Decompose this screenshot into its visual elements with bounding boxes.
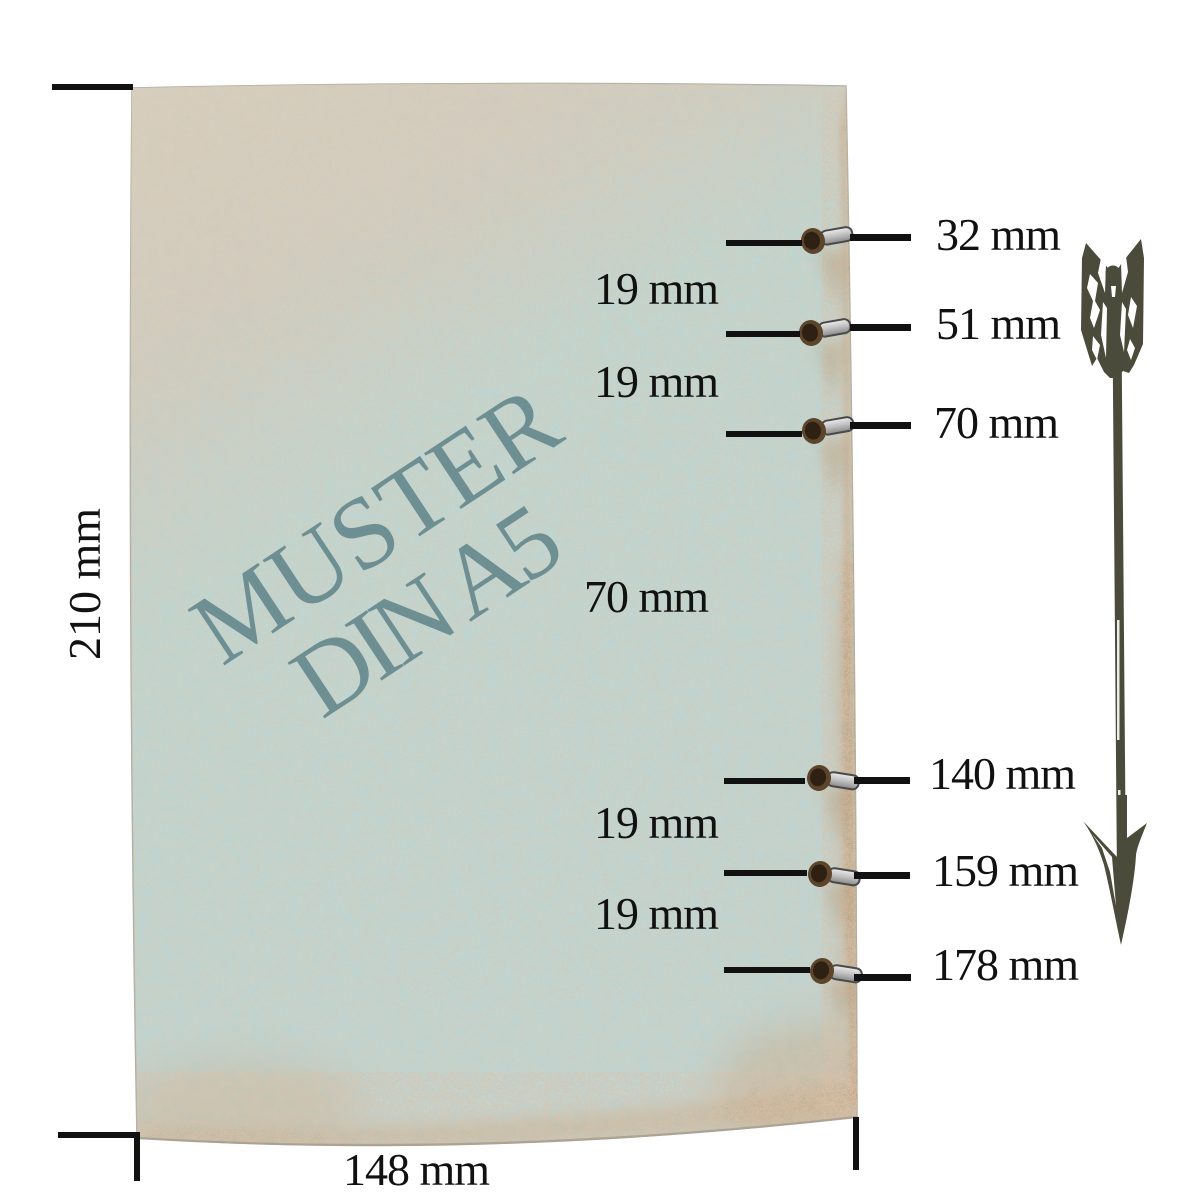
svg-text:19 mm: 19 mm (594, 797, 719, 848)
svg-text:140 mm: 140 mm (929, 748, 1076, 799)
svg-text:51 mm: 51 mm (936, 298, 1061, 349)
svg-text:19 mm: 19 mm (594, 888, 719, 939)
svg-text:70 mm: 70 mm (934, 397, 1059, 448)
svg-text:148 mm: 148 mm (343, 1144, 490, 1195)
svg-text:70 mm: 70 mm (584, 571, 709, 622)
svg-text:19 mm: 19 mm (594, 263, 719, 314)
svg-text:210 mm: 210 mm (59, 508, 110, 660)
svg-text:19 mm: 19 mm (594, 356, 719, 407)
svg-text:32 mm: 32 mm (936, 209, 1061, 260)
svg-text:178 mm: 178 mm (932, 939, 1079, 990)
svg-text:159 mm: 159 mm (932, 845, 1079, 896)
